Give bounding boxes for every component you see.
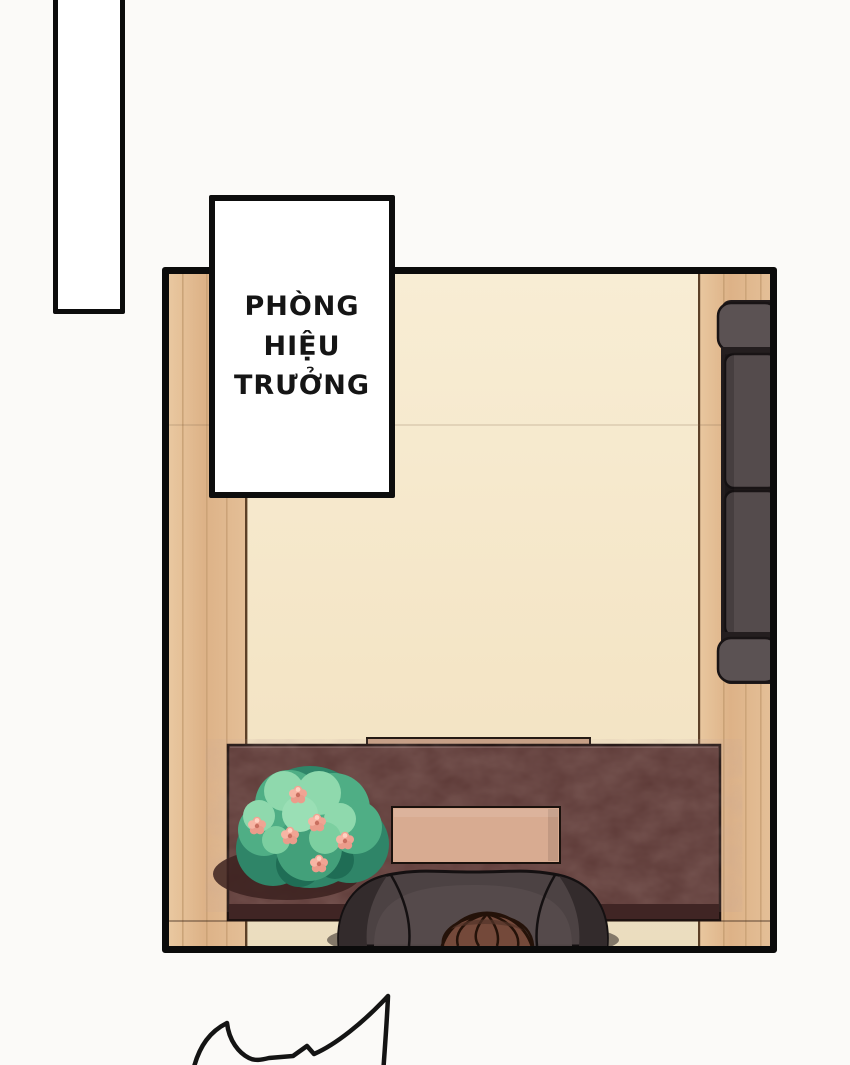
spiky-bubble-path (193, 996, 388, 1065)
comic-page: PHÒNG HIỆU TRƯỞNG (0, 0, 850, 1065)
spiky-bubble-fragment (145, 983, 425, 1065)
desk-blotter (392, 807, 560, 863)
room-label-text: PHÒNG HIỆU TRƯỞNG (234, 287, 370, 407)
sofa (718, 300, 770, 684)
sofa-armrest-top (718, 303, 770, 351)
room-label-box: PHÒNG HIỆU TRƯỞNG (209, 195, 395, 498)
sofa-armrest-bottom (718, 638, 770, 682)
partial-panel-top-left (53, 0, 125, 314)
